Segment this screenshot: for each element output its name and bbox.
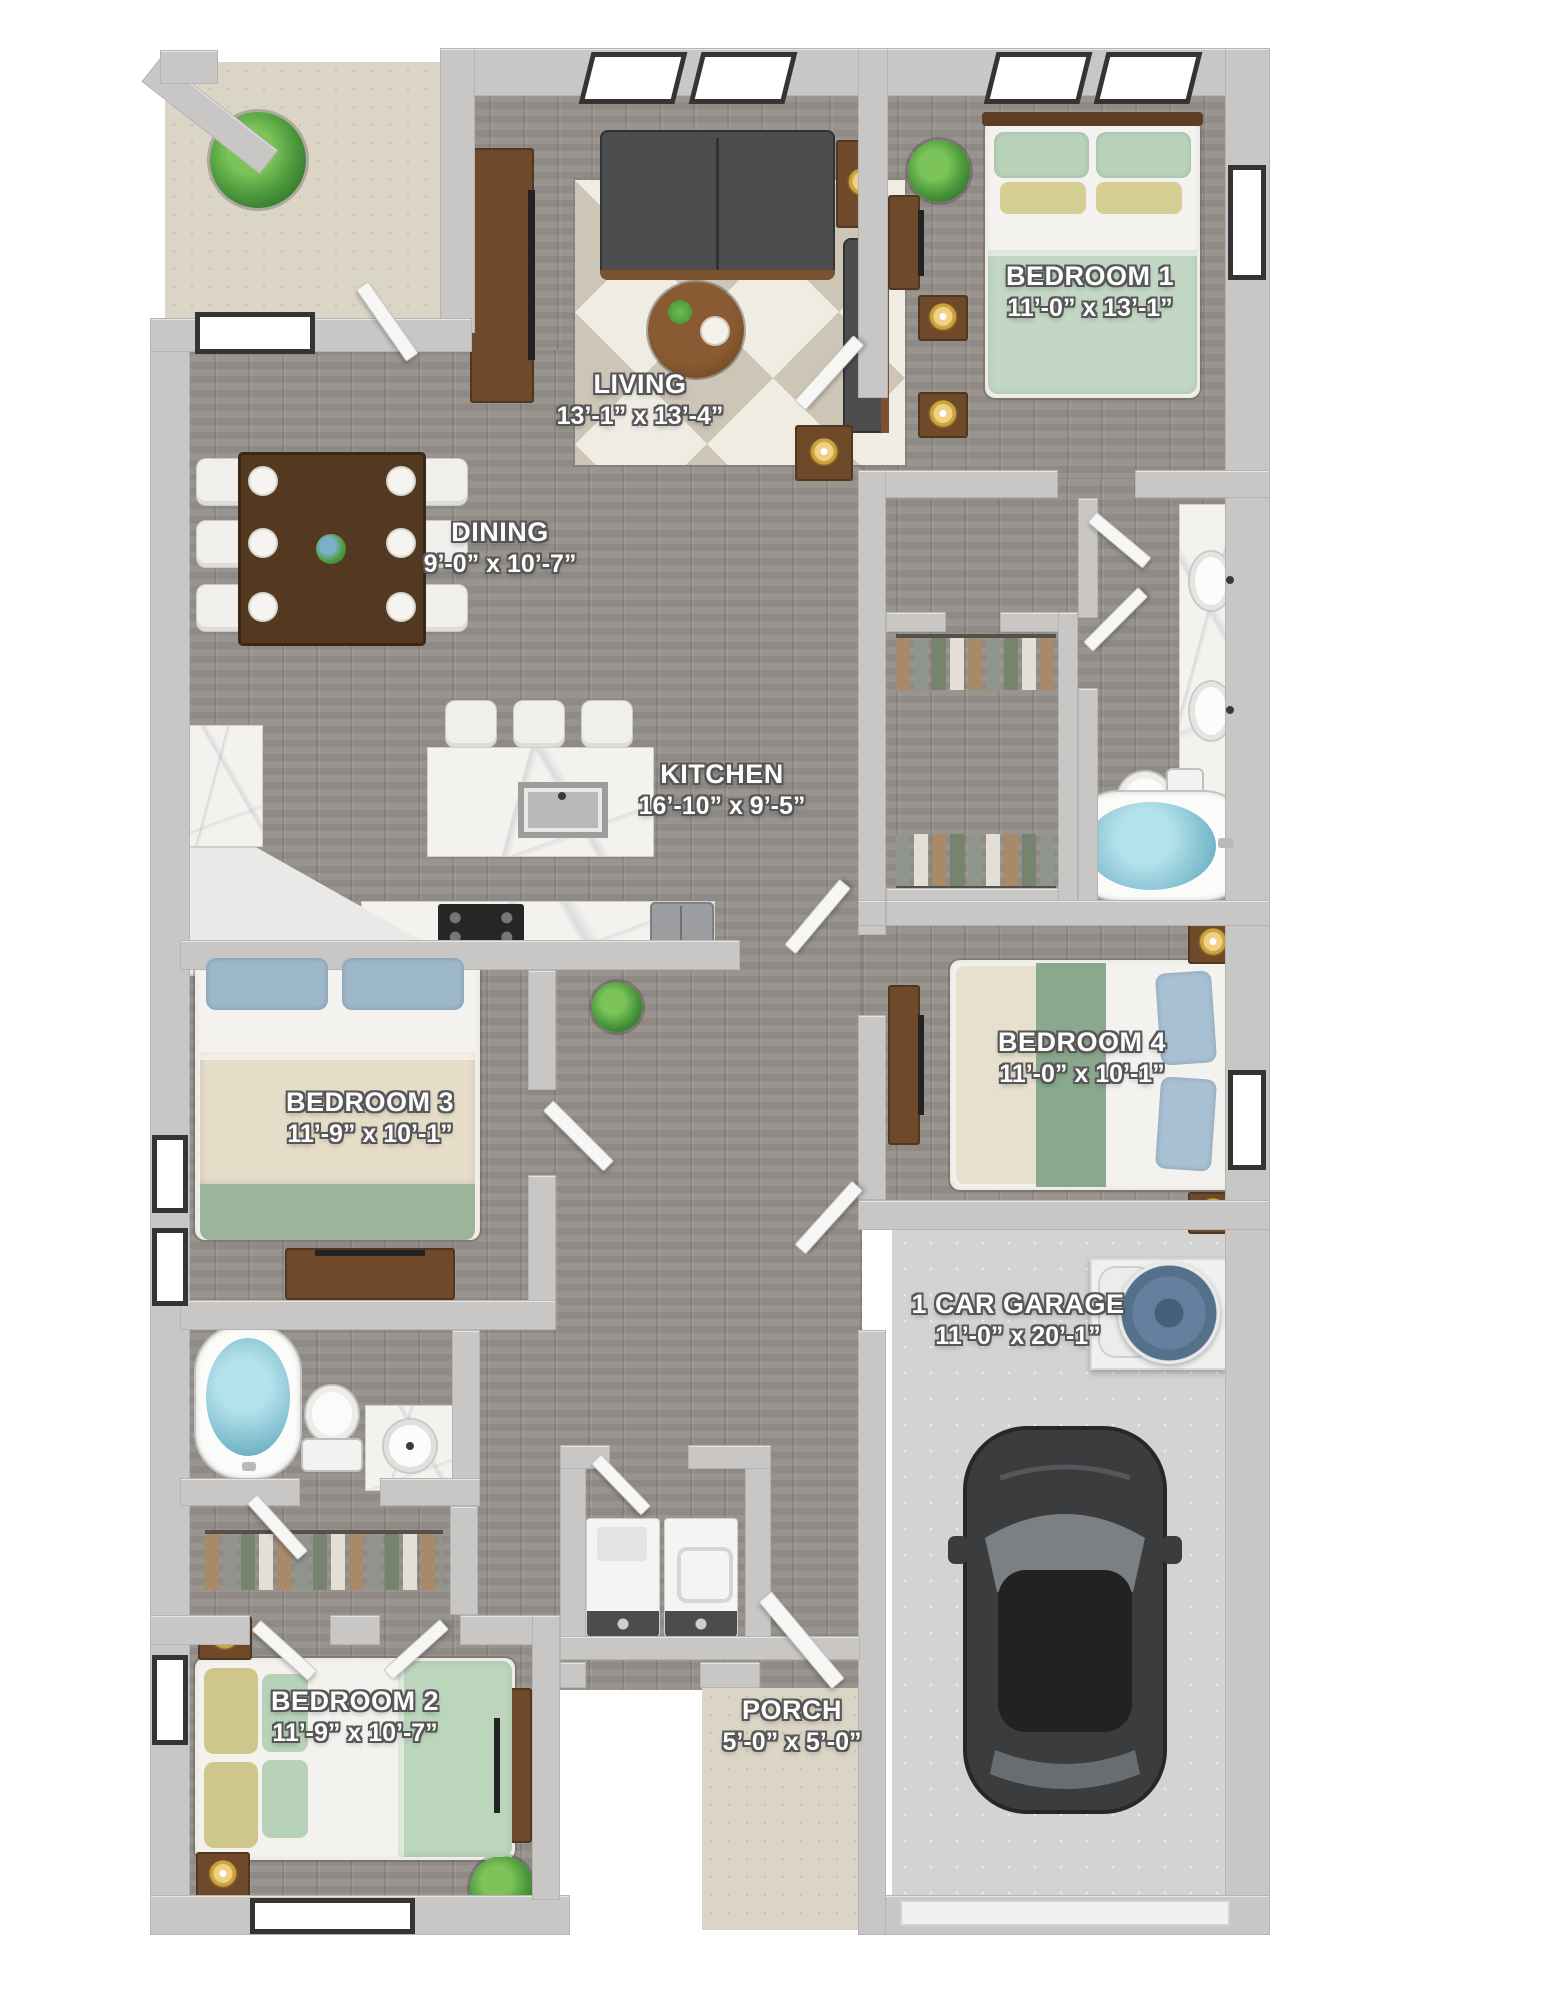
place-setting [388, 530, 414, 556]
wall [886, 900, 1270, 926]
wall [745, 1445, 771, 1660]
wall [858, 1200, 1270, 1230]
bath2-tub-water [206, 1338, 290, 1456]
nightstand-lamp-icon [928, 400, 958, 430]
room-dims: 11’-9” x 10’-7” [271, 1719, 439, 1748]
bath1-tub-water [1086, 802, 1216, 890]
nightstand-lamp-icon [208, 1860, 238, 1890]
washer [586, 1518, 660, 1638]
room-name: BEDROOM 1 [1006, 261, 1174, 292]
tv-icon [315, 1250, 425, 1256]
closet-clothes-rod [896, 634, 1056, 690]
garage-door [900, 1900, 1230, 1926]
room-name: BEDROOM 3 [286, 1087, 454, 1118]
bath2-toilet-tank [303, 1440, 361, 1470]
tub-faucet-icon [1218, 838, 1234, 848]
wall [858, 1015, 886, 1200]
room-name: BEDROOM 4 [998, 1027, 1166, 1058]
pantry-counter [182, 726, 262, 846]
wall [180, 1300, 556, 1330]
dryer-door [677, 1547, 733, 1603]
room-label-living: LIVING 13’-1” x 13’-4” [557, 369, 724, 431]
room-name: KITCHEN [639, 759, 806, 790]
room-name: LIVING [557, 369, 724, 400]
washer-panel [587, 1611, 659, 1637]
faucet-icon [558, 792, 566, 800]
room-label-garage: 1 CAR GARAGE 11’-0” x 20’-1” [911, 1289, 1124, 1351]
wall [560, 1662, 586, 1688]
room-dims: 11’-0” x 10’-1” [998, 1060, 1166, 1089]
nightstand-lamp-icon [928, 303, 958, 333]
faucet-icon [1226, 706, 1234, 714]
bar-stool [581, 700, 633, 748]
plant-icon [908, 140, 970, 202]
place-setting [250, 468, 276, 494]
room-label-bedroom1: BEDROOM 1 11’-0” x 13’-1” [1006, 261, 1174, 323]
window [689, 52, 798, 104]
nightstand-lamp-icon [1198, 928, 1228, 958]
window [1094, 52, 1203, 104]
bar-stool [445, 700, 497, 748]
bed3-dresser [285, 1248, 455, 1300]
room-name: PORCH [723, 1695, 862, 1726]
bath2-toilet-bowl [306, 1386, 358, 1442]
bed2-pillow-green [262, 1760, 308, 1838]
room-label-dining: DINING 9’-0” x 10’-7” [424, 517, 577, 579]
window [152, 1228, 188, 1306]
tv-icon [918, 210, 924, 276]
room-dims: 5’-0” x 5’-0” [723, 1728, 862, 1757]
window [1228, 165, 1266, 280]
bed4-pillow-blue [1155, 1076, 1217, 1172]
room-name: DINING [424, 517, 577, 548]
bed2-pillow-yellow [204, 1668, 258, 1754]
bed3-pillow-blue [206, 958, 328, 1010]
wall [380, 1478, 480, 1506]
room-dims: 13’-1” x 13’-4” [557, 402, 724, 431]
bed1-tv-console [888, 195, 920, 290]
place-setting [250, 594, 276, 620]
wall [150, 1615, 250, 1645]
faucet-icon [406, 1442, 414, 1450]
wall [450, 1506, 478, 1615]
bar-stool [513, 700, 565, 748]
bed4-tv-console [888, 985, 920, 1145]
room-dims: 11’-0” x 13’-1” [1006, 294, 1174, 323]
sofa-cushion-seam [716, 138, 719, 272]
bed3-footer-green [200, 1184, 475, 1240]
sofa-loveseat [600, 130, 835, 280]
room-label-porch: PORCH 5’-0” x 5’-0” [723, 1695, 862, 1757]
table-lamp-icon [809, 438, 839, 468]
place-setting [250, 530, 276, 556]
island-sink [518, 782, 608, 838]
window [579, 52, 688, 104]
water-heater-top [1118, 1262, 1220, 1364]
bed3-pillow-blue [342, 958, 464, 1010]
wall [858, 470, 1058, 498]
closet-clothes-rod [896, 834, 1056, 890]
bed1-pillow-yellow [1000, 182, 1086, 214]
room-dims: 16’-10” x 9’-5” [639, 792, 806, 821]
place-setting [388, 594, 414, 620]
wall [858, 1330, 886, 1935]
room-dims: 11’-0” x 20’-1” [911, 1322, 1124, 1351]
wall [330, 1615, 380, 1645]
room-name: BEDROOM 2 [271, 1686, 439, 1717]
tv-icon [918, 1015, 924, 1115]
wall [1058, 612, 1078, 908]
tv-icon [528, 190, 535, 360]
dryer-panel [665, 1611, 737, 1637]
bed1-pillow-yellow [1096, 182, 1182, 214]
wall [440, 48, 475, 333]
wall [688, 1445, 771, 1469]
table-centerpiece [316, 534, 346, 564]
place-setting [388, 468, 414, 494]
wall [1135, 470, 1270, 498]
car [940, 1420, 1190, 1820]
media-console [470, 148, 534, 403]
window [250, 1898, 415, 1934]
wall [160, 50, 218, 84]
room-label-kitchen: KITCHEN 16’-10” x 9’-5” [639, 759, 806, 821]
wall [180, 1478, 300, 1506]
wall [532, 1615, 560, 1900]
coffee-table-plant-icon [668, 300, 692, 324]
window [984, 52, 1093, 104]
window [152, 1135, 188, 1213]
tub-faucet-icon [242, 1462, 256, 1471]
wall [1078, 688, 1098, 905]
room-name: 1 CAR GARAGE [911, 1289, 1124, 1320]
wall [528, 970, 556, 1090]
bed1-pillow [994, 132, 1089, 178]
wall [858, 470, 886, 935]
wall [858, 900, 886, 926]
room-dims: 11’-9” x 10’-1” [286, 1120, 454, 1149]
bed2-pillow-yellow [204, 1762, 258, 1848]
floor-plan: LIVING 13’-1” x 13’-4” BEDROOM 1 11’-0” … [0, 0, 1545, 2000]
wall [560, 1445, 586, 1660]
hall-plant-icon [592, 982, 642, 1032]
window [1228, 1070, 1266, 1170]
dryer [664, 1518, 738, 1638]
coffee-table-tray [702, 318, 728, 344]
room-label-bedroom3: BEDROOM 3 11’-9” x 10’-1” [286, 1087, 454, 1149]
window [195, 312, 315, 354]
room-label-bedroom4: BEDROOM 4 11’-0” x 10’-1” [998, 1027, 1166, 1089]
bed1-pillow [1096, 132, 1191, 178]
faucet-icon [1226, 576, 1234, 584]
room-dims: 9’-0” x 10’-7” [424, 550, 577, 579]
bedroom2-closet-clothes [205, 1530, 443, 1590]
wall [886, 612, 946, 632]
sofa-wood-trim [600, 270, 835, 280]
wall [1225, 48, 1270, 1935]
tv-icon [494, 1718, 500, 1813]
room-label-bedroom2: BEDROOM 2 11’-9” x 10’-7” [271, 1686, 439, 1748]
window [152, 1655, 188, 1745]
bed1-headboard [982, 112, 1203, 126]
wall [700, 1662, 760, 1688]
coffee-table [648, 282, 744, 378]
washer-lid [597, 1527, 647, 1561]
